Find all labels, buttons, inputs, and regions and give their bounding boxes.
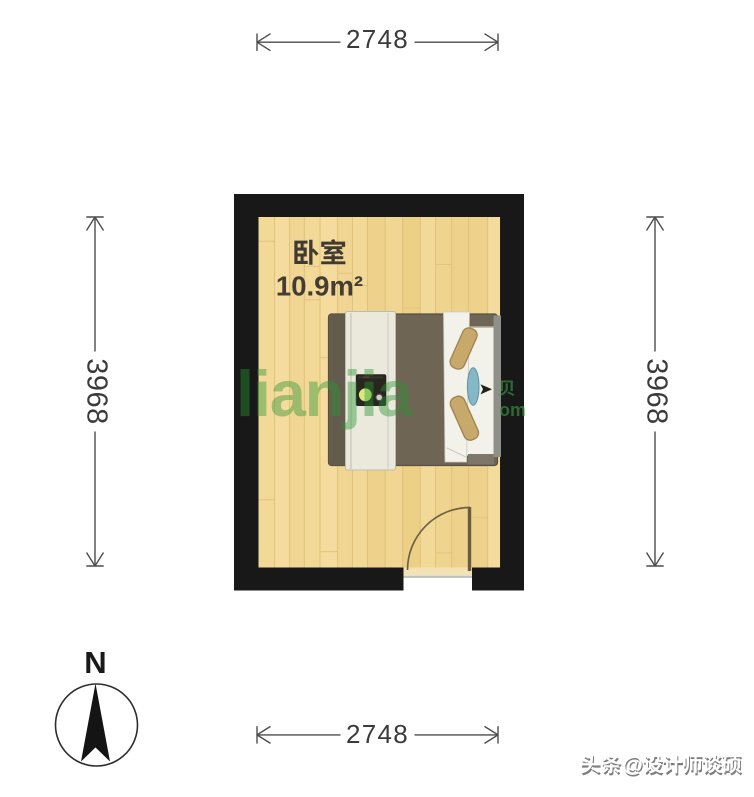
svg-text:10.9m²: 10.9m² — [276, 271, 363, 302]
svg-text:N: N — [84, 645, 106, 680]
svg-text:@: @ — [623, 753, 643, 776]
svg-text:3968: 3968 — [80, 358, 112, 425]
svg-text:3968: 3968 — [640, 358, 672, 425]
svg-text:om: om — [499, 400, 526, 420]
svg-text:2748: 2748 — [346, 24, 409, 54]
svg-text:2748: 2748 — [346, 719, 409, 749]
svg-text:lianjia: lianjia — [236, 357, 414, 430]
